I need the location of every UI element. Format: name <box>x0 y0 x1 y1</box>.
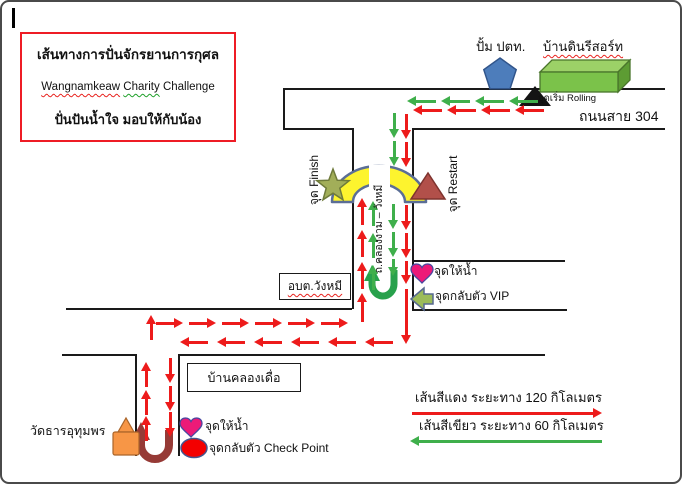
green-route-arrow <box>410 436 602 447</box>
red-route-arrow <box>180 337 208 348</box>
road-304-label: ถนนสาย 304 <box>579 108 658 124</box>
red-route-arrow <box>328 337 356 348</box>
red-route-arrow <box>141 416 152 441</box>
green-route-arrow <box>389 113 400 138</box>
gas-station-pentagon-icon <box>484 58 516 89</box>
red-route-arrow <box>156 318 183 329</box>
green-route-arrow <box>388 204 399 229</box>
red-route-arrow <box>401 233 412 258</box>
legend-green-label: เส้นสีเขียว ระยะทาง 60 กิโลเมตร <box>419 419 604 434</box>
vip-turnaround-label: จุดกลับตัว VIP <box>435 290 509 304</box>
title-english: Wangnamkeaw Charity Challenge <box>24 81 232 93</box>
title-slogan: ปั่นปันน้ำใจ มอบให้กับน้อง <box>24 109 232 130</box>
red-route-arrow <box>401 114 412 139</box>
vertical-road-label: ถ.คลองงาม – วังหมี <box>370 164 386 294</box>
water-heart-icon <box>411 264 433 283</box>
resort-label: บ้านดินรีสอร์ท <box>543 40 623 55</box>
red-route-arrow <box>165 386 176 411</box>
red-route-arrow <box>401 205 412 230</box>
gas-station-label: ปั้ม ปตท. <box>476 40 525 55</box>
red-route-arrow <box>189 318 216 329</box>
title-box: เส้นทางการปั่นจักรยานการกุศล Wangnamkeaw… <box>20 32 236 142</box>
red-route-arrow <box>141 390 152 415</box>
green-route-arrow <box>388 232 399 257</box>
village-label: บ้านคลองเดื่อ <box>207 368 280 388</box>
text-cursor-bar <box>12 8 15 28</box>
red-route-arrow <box>217 337 245 348</box>
village-box: บ้านคลองเดื่อ <box>187 363 301 392</box>
red-route-arrow <box>288 318 315 329</box>
sao-wangmi-label: อบต.วังหมี <box>288 277 342 296</box>
restart-label: จุด Restart <box>445 150 461 218</box>
red-route-arrow <box>401 289 412 344</box>
water-point-label: จุดให้น้ำ <box>434 265 478 279</box>
red-route-arrow <box>255 318 282 329</box>
water-heart-icon <box>180 418 202 437</box>
vip-turn-arrow-icon <box>411 288 433 310</box>
red-route-arrow <box>357 293 368 322</box>
red-route-arrow <box>447 105 476 116</box>
title-word-charity: Charity <box>123 81 159 93</box>
start-point-label: จุดเริ่ม Rolling <box>538 94 596 105</box>
green-route-arrow <box>388 259 399 276</box>
page-title: เส้นทางการปั่นจักรยานการกุศล <box>24 43 232 65</box>
red-route-arrow <box>515 105 544 116</box>
red-route-arrow <box>481 105 510 116</box>
red-route-arrow <box>291 337 319 348</box>
red-route-arrow <box>365 337 393 348</box>
red-route-arrow <box>357 262 368 289</box>
temple-label: วัดธารอุทุมพร <box>30 424 105 438</box>
legend-red-label: เส้นสีแดง ระยะทาง 120 กิโลเมตร <box>415 391 602 406</box>
title-word-challenge: Challenge <box>163 81 215 93</box>
checkpoint-turnaround-label: จุดกลับตัว Check Point <box>209 442 329 456</box>
finish-label: จุด Finish <box>306 150 322 210</box>
red-route-arrow <box>321 318 348 329</box>
red-route-arrow <box>413 105 442 116</box>
red-route-arrow <box>254 337 282 348</box>
route-map-slide: เส้นทางการปั่นจักรยานการกุศล Wangnamkeaw… <box>0 0 682 484</box>
resort-building-icon <box>540 60 630 92</box>
red-route-arrow <box>165 412 176 437</box>
checkpoint-ellipse-icon <box>181 439 207 458</box>
red-route-arrow <box>357 230 368 257</box>
title-word-wangnamkeaw: Wangnamkeaw <box>41 81 120 93</box>
red-route-arrow <box>357 198 368 225</box>
red-route-arrow <box>401 142 412 167</box>
sao-wangmi-box: อบต.วังหมี <box>279 273 351 300</box>
red-route-arrow <box>165 358 176 383</box>
green-route-arrow <box>389 141 400 166</box>
red-route-arrow <box>222 318 249 329</box>
red-route-arrow <box>141 362 152 387</box>
water-point-label: จุดให้น้ำ <box>205 420 249 434</box>
temple-icon <box>113 418 139 455</box>
red-route-arrow <box>401 261 412 284</box>
